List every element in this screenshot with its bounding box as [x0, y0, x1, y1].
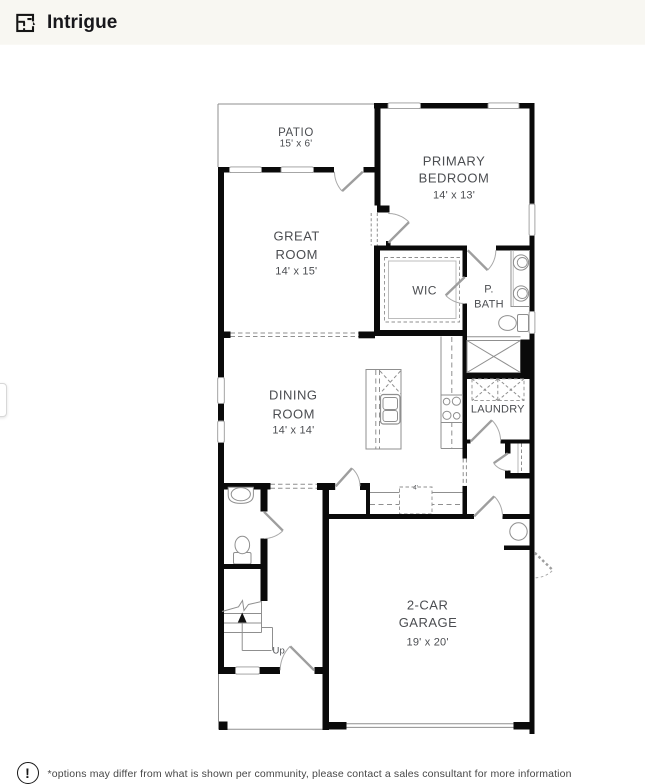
svg-text:LAUNDRY: LAUNDRY — [471, 404, 525, 416]
svg-text:BEDROOM: BEDROOM — [419, 171, 490, 186]
svg-text:19' x 20': 19' x 20' — [407, 636, 449, 648]
svg-text:Up: Up — [273, 646, 286, 657]
svg-text:14' x 15': 14' x 15' — [275, 265, 317, 277]
svg-text:GARAGE: GARAGE — [399, 615, 458, 630]
svg-text:ROOM: ROOM — [275, 247, 317, 262]
svg-text:PATIO: PATIO — [278, 127, 314, 139]
svg-text:14' x 13': 14' x 13' — [433, 189, 475, 201]
svg-text:GREAT: GREAT — [274, 229, 320, 244]
svg-text:15' x 6': 15' x 6' — [280, 139, 313, 150]
svg-text:PRIMARY: PRIMARY — [423, 154, 486, 169]
svg-text:BATH: BATH — [474, 298, 504, 310]
svg-text:ROOM: ROOM — [272, 406, 314, 421]
svg-text:DINING: DINING — [269, 388, 318, 403]
svg-text:P.: P. — [484, 284, 494, 296]
svg-text:4': 4' — [413, 486, 417, 492]
svg-text:WIC: WIC — [412, 284, 437, 298]
svg-text:14' x 14': 14' x 14' — [272, 425, 314, 437]
svg-text:2-CAR: 2-CAR — [407, 597, 449, 612]
